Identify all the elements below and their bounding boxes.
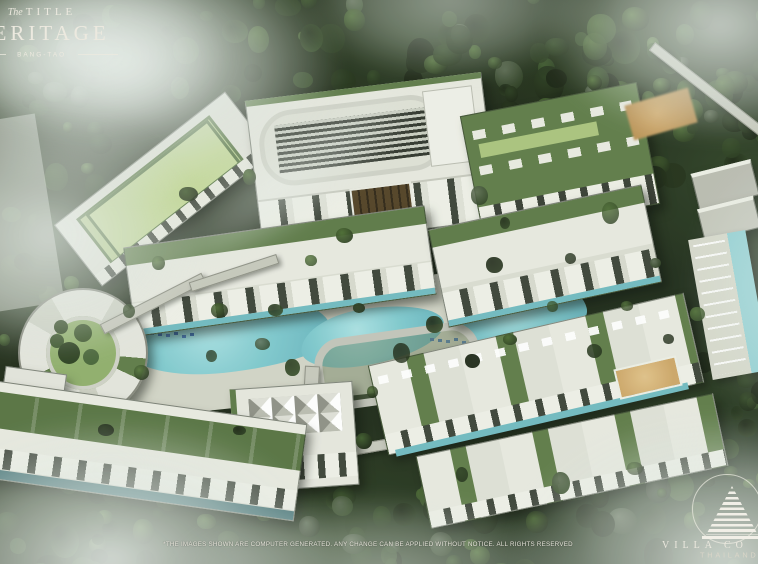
tree-canopy (465, 354, 480, 368)
tree-canopy (367, 386, 378, 398)
project-logo: TheTITLE HERITAGE BANG-TAO (0, 6, 118, 59)
tree-canopy (650, 258, 661, 268)
tree-canopy (285, 359, 300, 377)
tree-canopy (268, 304, 282, 315)
logo-title-word: TITLE (26, 6, 77, 18)
tree-canopy (123, 304, 135, 317)
tree-canopy (565, 253, 576, 264)
tree-canopy (456, 467, 469, 482)
tree-canopy (552, 472, 570, 494)
tree-canopy (663, 334, 674, 344)
tree-canopy (393, 343, 410, 364)
tree-canopy (134, 365, 149, 379)
tree-canopy (627, 462, 643, 476)
developer-name: VILLA CO (662, 540, 748, 551)
logo-name: HERITAGE (0, 21, 118, 46)
courtyard-trees-layer (0, 0, 758, 564)
tree-canopy (587, 344, 602, 358)
tree-canopy (602, 202, 620, 224)
logo-location: BANG-TAO (18, 51, 67, 58)
tree-canopy (503, 334, 517, 345)
tree-canopy (152, 256, 165, 270)
logo-prefix: TheTITLE (0, 6, 118, 18)
tree-canopy (486, 257, 503, 273)
logo-rule-right (78, 54, 118, 55)
logo-location-row: BANG-TAO (0, 50, 118, 59)
tree-canopy (255, 338, 270, 350)
chedi-base-bar (702, 536, 758, 539)
tree-canopy (305, 255, 317, 266)
tree-canopy (353, 303, 365, 313)
tree-canopy (547, 301, 558, 312)
tree-canopy (98, 424, 114, 436)
tree-canopy (426, 316, 442, 333)
tree-canopy (471, 186, 487, 205)
tree-canopy (690, 307, 705, 322)
tree-canopy (211, 303, 228, 318)
developer-country: THAILAND (700, 551, 758, 559)
aerial-render: TheTITLE HERITAGE BANG-TAO *THE IMAGES S… (0, 0, 758, 564)
disclaimer-text: *THE IMAGES SHOWN ARE COMPUTER GENERATED… (163, 541, 573, 548)
tree-canopy (233, 426, 245, 436)
tree-canopy (336, 228, 353, 243)
tree-canopy (179, 187, 198, 201)
tree-canopy (500, 217, 510, 228)
logo-rule-left (0, 54, 6, 55)
tree-canopy (206, 350, 217, 362)
tree-canopy (243, 169, 256, 185)
logo-script-the: The (8, 7, 23, 18)
tree-canopy (621, 301, 634, 311)
tree-canopy (356, 433, 372, 450)
